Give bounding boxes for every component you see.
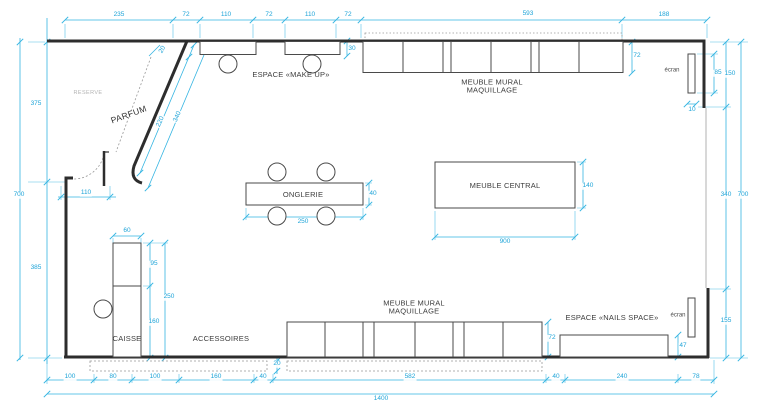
dim-diag-340: 340 [172,110,183,124]
label-onglerie: ONGLERIE [283,191,323,199]
dim-top-110b: 110 [304,12,316,19]
dim-nails-47: 47 [678,343,687,350]
dim-top-72b: 72 [264,12,273,19]
dim-right-150: 150 [724,71,737,78]
dim-left-385: 385 [30,265,43,272]
dim-left-375: 375 [30,101,43,108]
dim-ecran-10: 10 [687,107,696,114]
dim-bottom-240: 240 [616,374,629,381]
floor-plan-canvas: 2357211072110725931883757003851102022034… [0,0,767,420]
dim-mural-bottom-72: 72 [547,335,556,342]
dim-caisse-250: 250 [163,294,176,301]
dim-top-72a: 72 [181,12,190,19]
dim-bottom-80: 80 [108,374,117,381]
label-espace-makeup: ESPACE «MAKE UP» [252,71,329,79]
dim-right-700: 700 [737,192,750,199]
dim-caisse-60: 60 [122,228,131,235]
label-parfum: PARFUM [110,104,149,126]
dim-caisse-160: 160 [148,319,161,326]
dim-top-593: 593 [522,11,535,18]
label-mural-bottom: MEUBLE MURAL MAQUILLAGE [383,300,445,317]
dim-top-110a: 110 [220,12,232,19]
label-accessoires: ACCESSOIRES [193,335,249,343]
dim-top-188: 188 [658,12,671,19]
dim-bottom-40a: 40 [258,374,267,381]
dim-bottom-582: 582 [404,374,417,381]
dim-mural-top-72: 72 [632,53,641,60]
dim-bottom-1400: 1400 [373,396,389,403]
annotation-labels: 2357211072110725931883757003851102022034… [0,0,767,420]
label-ecran-top: écran [664,68,679,75]
dim-right-155: 155 [720,318,733,325]
dim-bottom-78: 78 [691,374,700,381]
label-reserve: RESERVE [74,90,103,96]
dim-central-140: 140 [582,183,595,190]
dim-makeup-30: 30 [347,46,356,53]
dim-right-340: 340 [720,192,733,199]
dim-bottom-100b: 100 [149,374,162,381]
dim-bottom-40b: 40 [551,374,560,381]
dim-central-900: 900 [499,239,512,246]
dim-caisse-95: 95 [149,261,158,268]
label-nails-space: ESPACE «NAILS SPACE» [566,314,659,322]
label-mural-top: MEUBLE MURAL MAQUILLAGE [461,79,523,96]
dim-diag-20: 20 [158,44,168,55]
dim-left-700: 700 [13,192,26,199]
dim-onglerie-40: 40 [368,191,377,198]
dim-bottom-100a: 100 [64,374,77,381]
dim-accessoires-20: 20 [272,361,281,368]
dim-diag-220: 220 [155,115,166,129]
dim-top-72c: 72 [343,12,352,19]
dim-bottom-160: 160 [210,374,223,381]
dim-top-235: 235 [113,12,126,19]
label-caisse: CAISSE [113,335,142,343]
dim-ecran-85: 85 [713,70,722,77]
dim-onglerie-250: 250 [297,219,310,226]
dim-door-110: 110 [80,190,92,197]
label-ecran-bottom: écran [670,313,685,320]
label-meuble-central: MEUBLE CENTRAL [470,182,541,190]
